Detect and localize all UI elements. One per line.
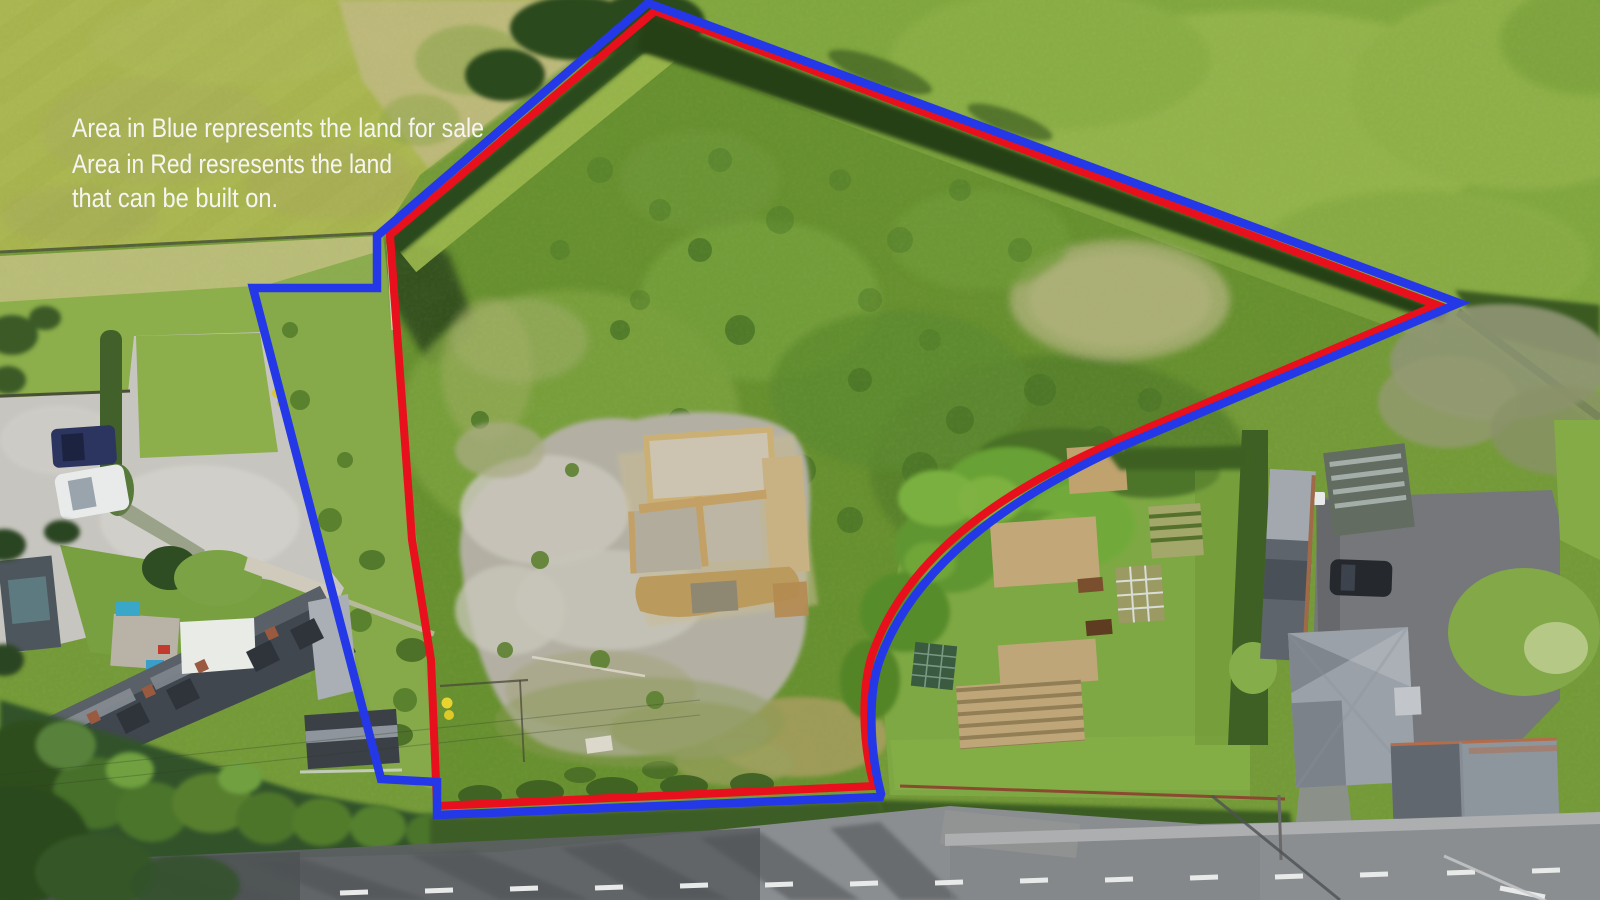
svg-text:Area in Blue represents the la: Area in Blue represents the land for sal… [72, 113, 484, 143]
svg-text:that can be built on.: that can be built on. [72, 183, 278, 213]
svg-text:Area in Red resresents the lan: Area in Red resresents the land [72, 149, 392, 179]
